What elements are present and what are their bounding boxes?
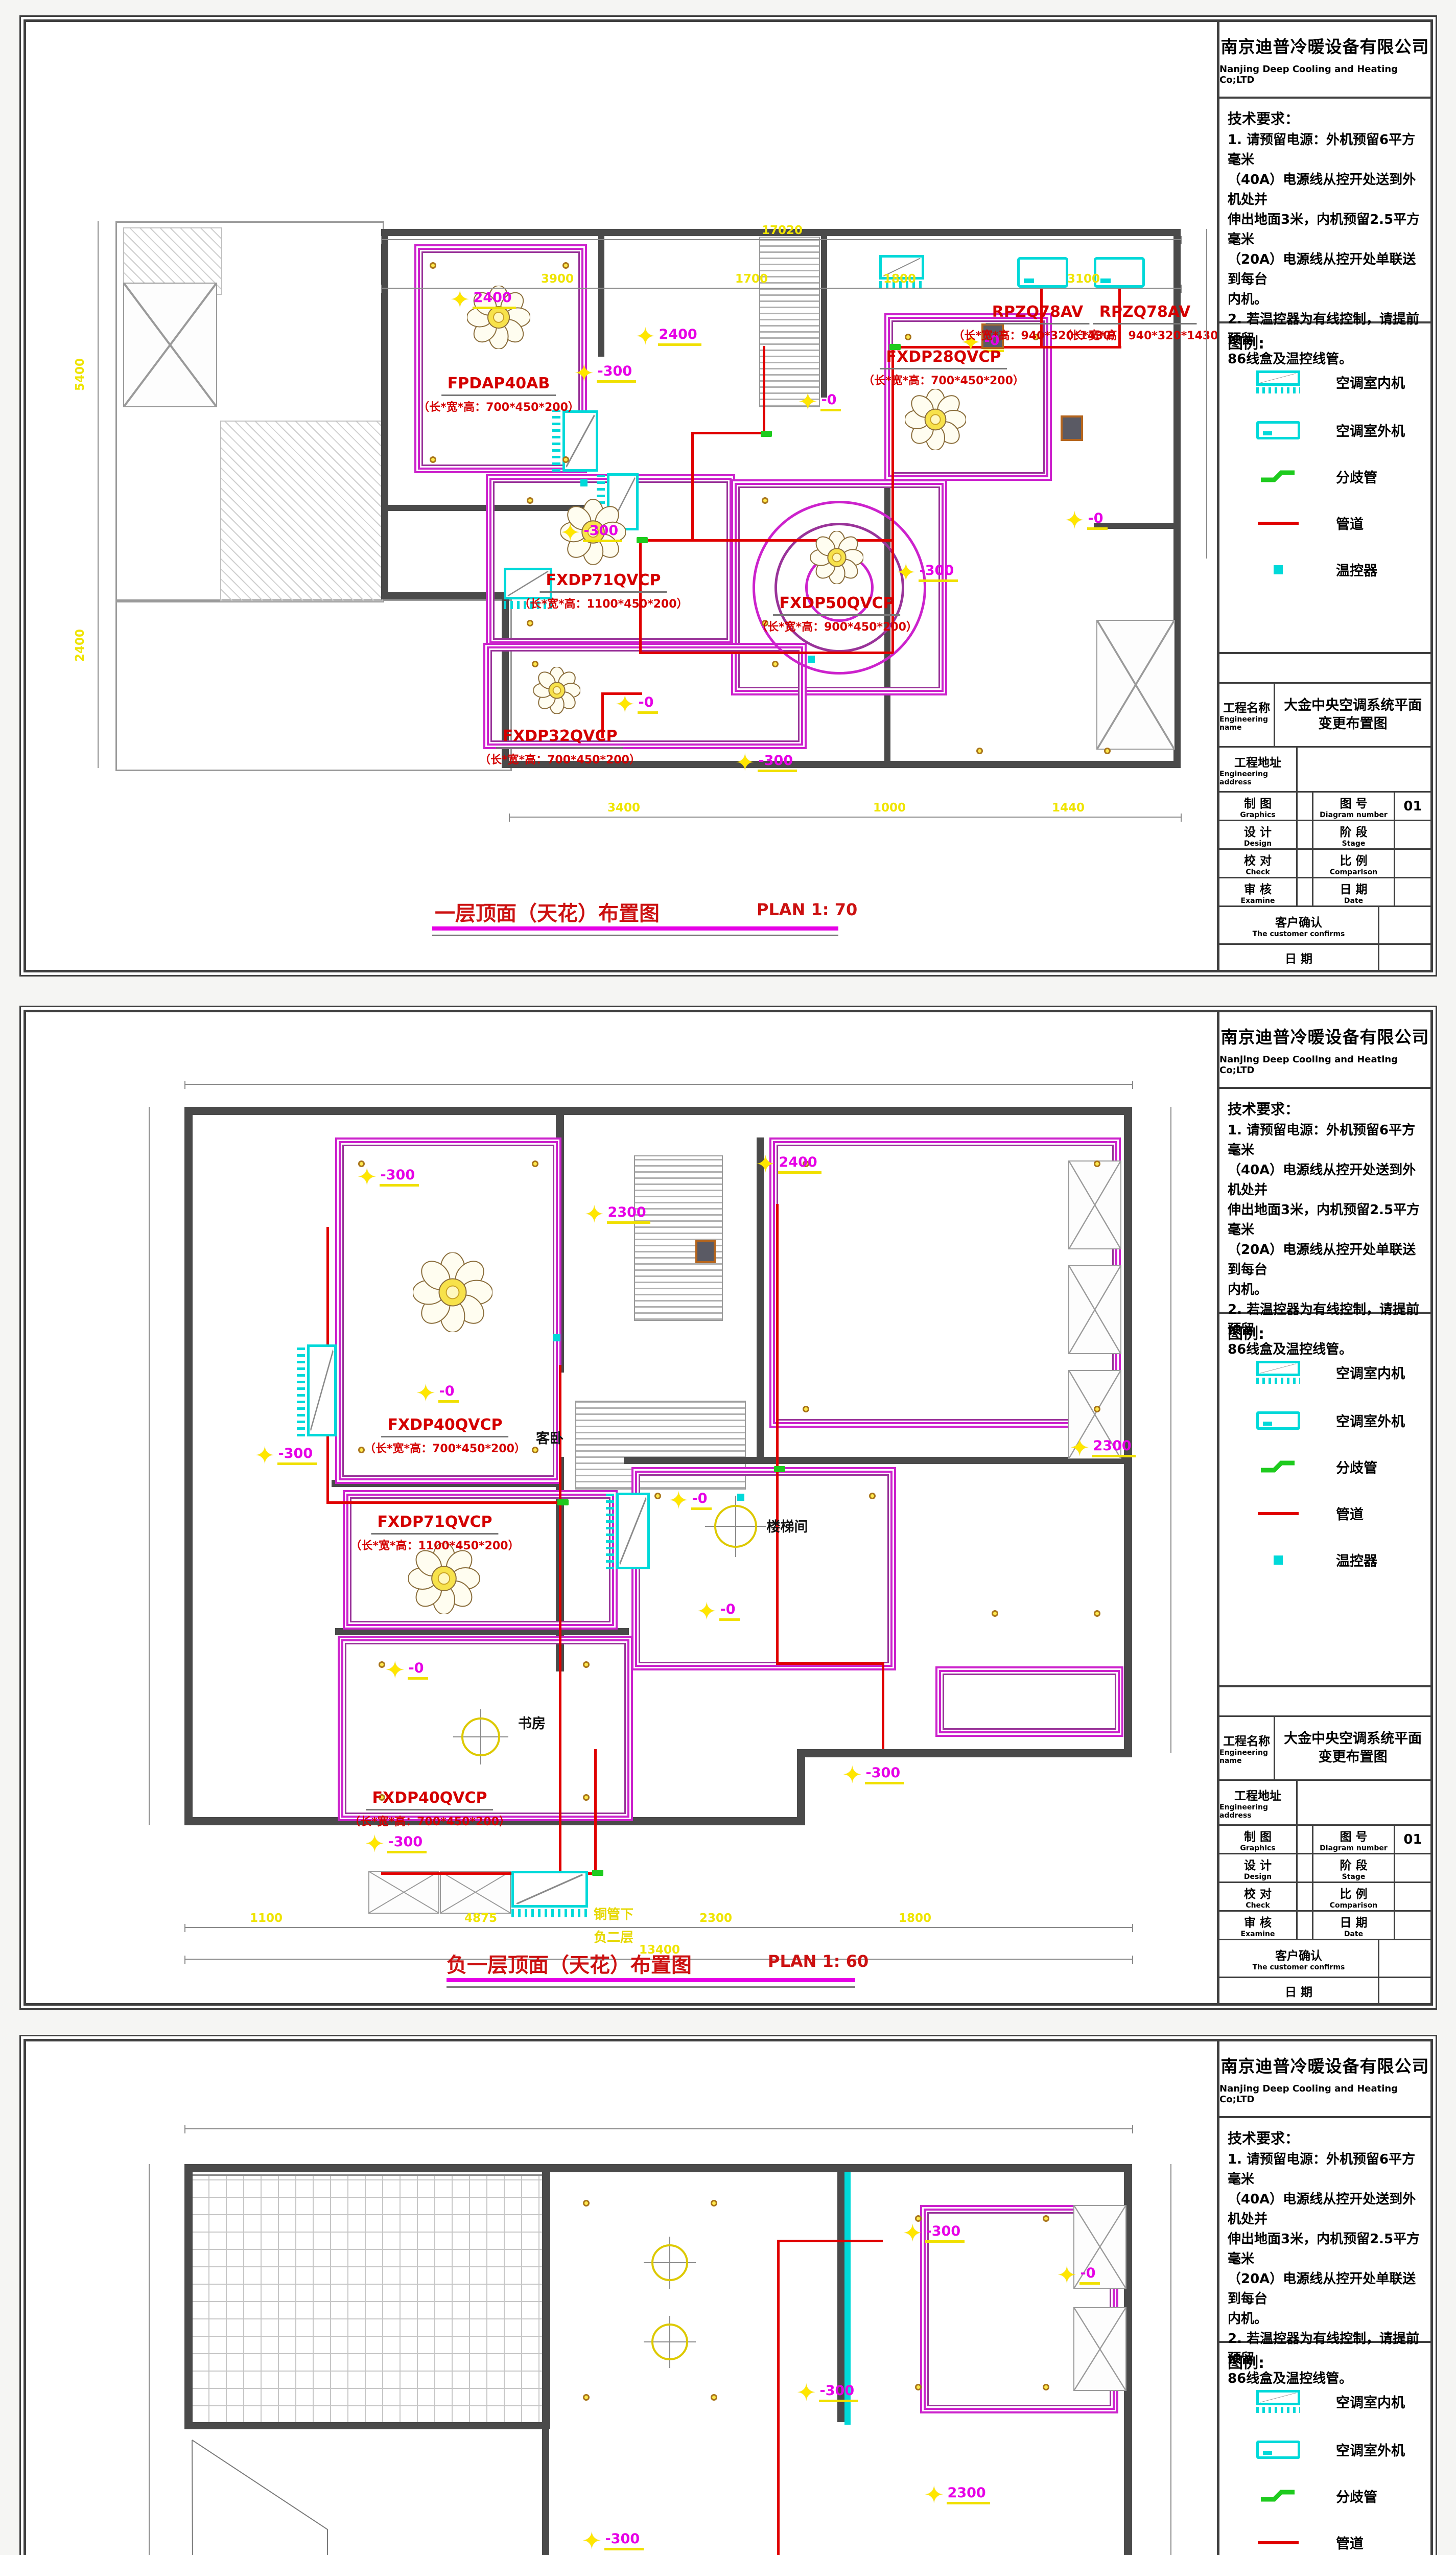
legend-symbol xyxy=(1240,468,1317,486)
dimension-line xyxy=(381,239,1181,240)
field-label: 工程地址Engineering address xyxy=(1219,748,1296,791)
field-label-cn: 日 期 xyxy=(1340,1913,1367,1930)
table-row: 日 期 xyxy=(1219,943,1430,970)
wall-segment xyxy=(757,1137,764,1457)
company-header: 南京迪普冷暖设备有限公司Nanjing Deep Cooling and Hea… xyxy=(1219,2041,1430,2118)
downlight-icon xyxy=(1094,1406,1100,1412)
field-label-cn: 阶 段 xyxy=(1340,1855,1367,1873)
technical-requirements: 技术要求：1. 请预留电源：外机预留6平方毫米 （40A）电源线从控开处送到外机… xyxy=(1219,99,1430,323)
dimension-value: 2300 xyxy=(699,1912,732,1925)
unit-label: FXDP50QVCP（长*宽*高：900*450*200） xyxy=(756,594,918,634)
thermostat-symbol xyxy=(553,1334,560,1341)
legend-symbol xyxy=(1240,522,1317,525)
indoor-unit-icon xyxy=(1256,370,1300,386)
star-icon: ✦ xyxy=(669,1489,689,1512)
plan-title: 一层顶面（天花）布置图 xyxy=(435,897,660,926)
indoor-unit-symbol xyxy=(562,410,598,472)
downlight-icon xyxy=(583,2394,590,2401)
refrigerant-pipe xyxy=(776,1204,779,1664)
elevation-value: -0 xyxy=(438,1383,459,1403)
crossed-panel xyxy=(368,1871,439,1914)
dimension-line-vertical xyxy=(98,221,99,768)
field-label: 工程名称Engineering name xyxy=(1219,1717,1274,1779)
outdoor-unit-icon xyxy=(1256,1411,1300,1430)
dimension-tick xyxy=(1181,236,1182,244)
legend-item: 分歧管 xyxy=(1240,2486,1422,2506)
legend-label: 管道 xyxy=(1336,513,1364,533)
wall-segment xyxy=(797,1749,805,1825)
company-name-en: Nanjing Deep Cooling and Heating Co;LTD xyxy=(1219,1054,1430,1076)
legend-item: 温控器 xyxy=(1240,1550,1422,1570)
elevation-mark: ✦-0 xyxy=(798,390,841,413)
field-empty xyxy=(1296,793,1312,820)
star-icon: ✦ xyxy=(924,2483,944,2506)
downlight-icon xyxy=(711,2394,717,2401)
field-label-en: Engineering name xyxy=(1219,715,1274,732)
elevation-value: -300 xyxy=(604,2531,644,2550)
downlight-icon xyxy=(358,1447,365,1453)
field-empty xyxy=(1378,945,1430,970)
legend-item: 空调室内机 xyxy=(1240,2390,1422,2413)
table-row: 工程地址Engineering address xyxy=(1219,1779,1430,1824)
star-icon: ✦ xyxy=(1057,2263,1077,2287)
dimension-value: 2400 xyxy=(74,629,87,662)
room-name: 客卧 xyxy=(536,1427,563,1447)
elevation-value: -300 xyxy=(583,523,623,542)
thermostat-symbol xyxy=(580,479,588,486)
wall-segment xyxy=(821,229,827,398)
airflow-icon xyxy=(552,410,560,472)
unit-dimensions: （长*宽*高：1100*450*200） xyxy=(350,1537,519,1553)
legend: 图例:空调室内机空调室外机分歧管管道温控器 xyxy=(1219,1314,1430,1687)
field-label: 日 期Date xyxy=(1312,878,1394,905)
dimension-tick xyxy=(1181,285,1182,293)
table-row: 设 计Design阶 段Stage xyxy=(1219,1853,1430,1882)
unit-model: FXDP40QVCP xyxy=(366,1789,493,1810)
field-label: 校 对Check xyxy=(1219,850,1296,877)
legend-label: 空调室内机 xyxy=(1336,2391,1405,2411)
dimension-value: 4875 xyxy=(464,1912,497,1925)
outdoor-unit-foot xyxy=(1100,278,1111,283)
legend-label: 空调室外机 xyxy=(1336,420,1405,440)
ceiling-border-outline xyxy=(935,1666,1123,1737)
branch-pipe-fitting xyxy=(557,1499,569,1505)
field-label: 日 期 xyxy=(1219,1978,1378,2003)
company-name-en: Nanjing Deep Cooling and Heating Co;LTD xyxy=(1219,64,1430,85)
dimension-value: 3100 xyxy=(1067,272,1100,286)
downlight-icon xyxy=(430,262,436,269)
indoor-unit-symbol xyxy=(511,1871,588,1908)
field-empty xyxy=(1378,1940,1430,1977)
field-label: 工程名称Engineering name xyxy=(1219,684,1274,746)
dimension-value: 1100 xyxy=(250,1912,283,1925)
field-empty xyxy=(1296,1854,1312,1882)
star-icon: ✦ xyxy=(756,1152,776,1176)
field-label-en: Examine xyxy=(1241,897,1275,905)
table-row: 审 核Examine日 期Date xyxy=(1219,877,1430,905)
field-label: 设 计Design xyxy=(1219,821,1296,848)
wall-segment xyxy=(184,2164,193,2429)
downlight-icon xyxy=(562,262,569,269)
unit-dimensions: （长*宽*高：1100*450*200） xyxy=(519,595,688,611)
company-name-cn: 南京迪普冷暖设备有限公司 xyxy=(1221,33,1429,58)
dimension-value: 1000 xyxy=(873,801,906,815)
branch-pipe-icon xyxy=(1260,468,1297,486)
ceiling-medallion xyxy=(810,531,863,586)
crossed-panel xyxy=(1073,2307,1126,2391)
airflow-icon xyxy=(511,1909,588,1917)
elevation-value: 2300 xyxy=(1092,1438,1136,1457)
elevation-mark: ✦-300 xyxy=(365,1832,427,1855)
elevation-mark: ✦-0 xyxy=(1057,2263,1100,2287)
star-icon: ✦ xyxy=(796,2381,816,2404)
crossed-panel xyxy=(440,1871,511,1914)
wall-segment xyxy=(624,1457,1132,1464)
field-label: 制 图Graphics xyxy=(1219,1826,1296,1853)
unit-model: FXDP40QVCP xyxy=(381,1416,508,1437)
legend-item: 管道 xyxy=(1240,1503,1422,1523)
elevation-value: -300 xyxy=(597,363,637,383)
star-icon: ✦ xyxy=(416,1381,436,1405)
field-value: 01 xyxy=(1394,793,1430,820)
field-label-en: Graphics xyxy=(1240,1844,1275,1852)
legend-label: 温控器 xyxy=(1336,560,1377,579)
elevation-mark: ✦-300 xyxy=(842,1763,904,1786)
refrigerant-pipe xyxy=(691,432,694,540)
field-label-cn: 制 图 xyxy=(1244,794,1272,811)
downlight-icon xyxy=(1043,2215,1049,2222)
legend-symbol xyxy=(1240,1512,1317,1515)
legend-label: 空调室内机 xyxy=(1336,1362,1405,1382)
elevation-value: -0 xyxy=(1079,2265,1100,2285)
field-label-en: Comparison xyxy=(1330,868,1378,876)
downlight-icon xyxy=(869,1493,876,1499)
elevation-mark: ✦-300 xyxy=(582,2529,644,2552)
star-icon: ✦ xyxy=(357,1165,377,1189)
elevation-value: -300 xyxy=(865,1765,905,1784)
drawing-sheet-1: ✦-300✦2400✦2400✦-0✦-300✦-300✦-0✦-0✦-300✦… xyxy=(19,15,1437,977)
legend-symbol xyxy=(1240,2487,1317,2505)
legend-item: 分歧管 xyxy=(1240,467,1422,486)
field-label: 图 号Diagram number xyxy=(1312,1826,1394,1853)
elevation-value: 2400 xyxy=(778,1154,821,1174)
field-value xyxy=(1296,1781,1430,1824)
wall-segment xyxy=(598,229,604,357)
legend-label: 分歧管 xyxy=(1336,1457,1377,1477)
field-label-cn: 审 核 xyxy=(1244,1913,1272,1930)
electric-box xyxy=(695,1240,716,1263)
star-icon: ✦ xyxy=(560,521,580,544)
legend-label: 管道 xyxy=(1336,1503,1364,1523)
unit-label: FXDP28QVCP（长*宽*高：700*450*200） xyxy=(863,348,1024,388)
ceiling-center-mark xyxy=(453,1709,508,1767)
branch-pipe-fitting xyxy=(761,431,772,437)
crossed-panel xyxy=(1068,1160,1121,1249)
elevation-value: -300 xyxy=(925,2223,965,2243)
unit-label: FXDP40QVCP（长*宽*高：700*450*200） xyxy=(364,1416,526,1456)
dimension-tick xyxy=(1132,2125,1133,2133)
field-label-cn: 比 例 xyxy=(1340,1884,1367,1901)
balcony-outline xyxy=(115,599,512,771)
star-icon: ✦ xyxy=(842,1763,862,1786)
field-label-en: Examine xyxy=(1241,1930,1275,1938)
dimension-tick xyxy=(381,236,382,244)
company-header: 南京迪普冷暖设备有限公司Nanjing Deep Cooling and Hea… xyxy=(1219,1012,1430,1089)
dimension-line xyxy=(184,1084,1132,1085)
field-empty xyxy=(1219,1687,1430,1715)
dimension-tick xyxy=(509,814,510,822)
dimension-line xyxy=(184,1927,1132,1928)
field-label-cn: 工程地址 xyxy=(1234,1786,1281,1803)
field-label-cn: 工程地址 xyxy=(1234,753,1281,770)
legend-label: 分歧管 xyxy=(1336,2486,1377,2506)
elevation-value: -300 xyxy=(387,1834,427,1853)
legend-symbol xyxy=(1240,1361,1317,1384)
unit-label: FXDP40QVCP（长*宽*高：700*450*200） xyxy=(349,1789,510,1829)
refrigerant-pipe xyxy=(777,2240,883,2242)
field-label: 制 图Graphics xyxy=(1219,793,1296,820)
star-icon: ✦ xyxy=(1065,508,1085,532)
plan-title: 负一层顶面（天花）布置图 xyxy=(447,1948,692,1978)
legend-symbol xyxy=(1240,2541,1317,2544)
field-label-en: The customer confirms xyxy=(1253,930,1345,938)
field-label: 审 核Examine xyxy=(1219,1912,1296,1939)
star-icon: ✦ xyxy=(1070,1436,1090,1459)
field-value xyxy=(1296,748,1430,791)
field-label: 校 对Check xyxy=(1219,1883,1296,1910)
field-label: 审 核Examine xyxy=(1219,878,1296,905)
unit-model: FXDP50QVCP xyxy=(773,594,900,616)
outdoor-unit-icon xyxy=(1256,2441,1300,2459)
refrigerant-pipe xyxy=(763,346,765,433)
field-label-cn: 制 图 xyxy=(1244,1827,1272,1844)
elevation-value: -300 xyxy=(919,563,958,582)
crossed-panel xyxy=(1068,1265,1121,1354)
legend-item: 空调室外机 xyxy=(1240,420,1422,440)
title-underline-magenta xyxy=(447,1978,855,1982)
dimension-tick xyxy=(1132,1924,1133,1932)
elevation-value: 2300 xyxy=(607,1204,650,1224)
field-label: 设 计Design xyxy=(1219,1854,1296,1882)
tech-requirements-title: 技术要求： xyxy=(1228,1098,1422,1119)
field-value-text: 大金中央空调系统平面变更布置图 xyxy=(1275,1730,1430,1767)
dimension-tick xyxy=(184,1081,185,1089)
legend-item: 空调室内机 xyxy=(1240,1361,1422,1384)
crossed-panel xyxy=(123,283,217,407)
downlight-icon xyxy=(992,1610,998,1617)
field-label-cn: 日 期 xyxy=(1340,879,1367,897)
field-empty xyxy=(1394,1854,1430,1882)
field-label-en: Stage xyxy=(1342,1873,1366,1881)
field-label: 客户确认The customer confirms xyxy=(1219,907,1378,943)
legend-label: 空调室外机 xyxy=(1336,2440,1405,2459)
table-row: 客户确认The customer confirms xyxy=(1219,1939,1430,1977)
field-label: 阶 段Stage xyxy=(1312,1854,1394,1882)
electric-box xyxy=(1061,415,1083,441)
dimension-line-vertical xyxy=(149,2164,150,2555)
legend-label: 空调室外机 xyxy=(1336,1410,1405,1430)
field-empty xyxy=(1394,878,1430,905)
star-icon: ✦ xyxy=(255,1444,275,1467)
indoor-unit-symbol xyxy=(307,1344,337,1436)
downlight-icon xyxy=(583,1661,590,1668)
field-empty xyxy=(1378,907,1430,943)
wall-segment xyxy=(797,1749,1132,1757)
elevation-mark: ✦-300 xyxy=(896,561,958,584)
ceiling-center-mark xyxy=(644,2237,696,2291)
elevation-mark: ✦2300 xyxy=(584,1202,650,1226)
field-empty xyxy=(1394,1883,1430,1910)
downlight-icon xyxy=(527,620,533,626)
field-empty xyxy=(1296,850,1312,877)
field-label: 比 例Comparison xyxy=(1312,1883,1394,1910)
field-empty xyxy=(1394,1912,1430,1939)
elevation-value: -0 xyxy=(1087,510,1108,530)
downlight-icon xyxy=(1104,748,1111,754)
field-empty xyxy=(1394,850,1430,877)
field-empty xyxy=(1296,1826,1312,1853)
field-label-cn: 客户确认 xyxy=(1275,1946,1322,1963)
airflow-icon xyxy=(1256,387,1300,393)
field-label-cn: 工程名称 xyxy=(1223,1731,1270,1749)
star-icon: ✦ xyxy=(735,751,755,774)
airflow-icon xyxy=(1256,1378,1300,1384)
technical-requirements: 技术要求：1. 请预留电源：外机预留6平方毫米 （40A）电源线从控开处送到外机… xyxy=(1219,1089,1430,1314)
unit-dimensions: （长*宽*高：700*450*200） xyxy=(863,371,1024,388)
thermostat-symbol xyxy=(808,656,815,663)
unit-label: RPZQ78AV（长*宽*高：940*320*1430） xyxy=(1060,303,1229,343)
elevation-mark: ✦-0 xyxy=(697,1599,740,1623)
field-label-cn: 校 对 xyxy=(1244,1884,1272,1901)
unit-dimensions: （长*宽*高：700*450*200） xyxy=(364,1439,526,1456)
title-block: 南京迪普冷暖设备有限公司Nanjing Deep Cooling and Hea… xyxy=(1217,1012,1430,2003)
airflow-icon xyxy=(606,1493,614,1569)
elevation-mark: ✦-300 xyxy=(735,751,797,774)
legend-item: 管道 xyxy=(1240,513,1422,533)
indoor-unit-icon xyxy=(1256,2390,1300,2405)
star-icon: ✦ xyxy=(584,1202,604,1226)
downlight-icon xyxy=(532,1447,538,1453)
outdoor-unit-symbol xyxy=(1094,257,1145,288)
field-label-cn: 日 期 xyxy=(1285,949,1312,966)
unit-dimensions: （长*宽*高：940*320*1430） xyxy=(1060,327,1229,343)
hatched-area xyxy=(220,421,383,601)
downlight-icon xyxy=(905,334,911,340)
elevation-mark: ✦-0 xyxy=(669,1489,712,1512)
title-underline-gray xyxy=(447,1986,855,1988)
refrigerant-pipe xyxy=(639,652,894,654)
thermostat-icon xyxy=(1274,1555,1283,1565)
legend-item: 管道 xyxy=(1240,2533,1422,2552)
unit-label: FPDAP40AB（长*宽*高：700*450*200） xyxy=(418,375,579,414)
pipe-icon xyxy=(1258,522,1299,525)
star-icon: ✦ xyxy=(697,1599,717,1623)
field-label-cn: 阶 段 xyxy=(1340,822,1367,840)
unit-model: FXDP71QVCP xyxy=(371,1513,498,1535)
legend-symbol xyxy=(1240,1555,1317,1565)
dimension-tick xyxy=(184,1956,185,1964)
field-empty xyxy=(1296,1912,1312,1939)
unit-label: FXDP71QVCP（长*宽*高：1100*450*200） xyxy=(350,1513,519,1553)
downlight-icon xyxy=(1094,1610,1100,1617)
field-label-en: Check xyxy=(1246,868,1270,876)
dimension-line-vertical xyxy=(149,1107,150,1825)
dimension-tick xyxy=(1132,1081,1133,1089)
table-row: 日 期 xyxy=(1219,1977,1430,2003)
unit-label: FXDP32QVCP（长*宽*高：700*450*200） xyxy=(479,727,641,767)
field-label-en: Design xyxy=(1244,840,1272,848)
table-row: 工程名称Engineering name大金中央空调系统平面变更布置图 xyxy=(1219,1715,1430,1779)
field-label: 阶 段Stage xyxy=(1312,821,1394,848)
field-label-en: Graphics xyxy=(1240,811,1275,819)
project-info-table: 工程名称Engineering name大金中央空调系统平面变更布置图工程地址E… xyxy=(1219,1687,1430,2003)
field-label-en: Date xyxy=(1344,1930,1363,1938)
tech-requirements-title: 技术要求： xyxy=(1228,2127,1422,2148)
drawing-sheet-3: ✦-300✦2300✦-0✦-300✦-300✦-0✦-300✦-0FXDP71… xyxy=(19,2035,1437,2555)
technical-requirements: 技术要求：1. 请预留电源：外机预留6平方毫米 （40A）电源线从控开处送到外机… xyxy=(1219,2118,1430,2343)
legend: 图例:空调室内机空调室外机分歧管管道温控器 xyxy=(1219,2343,1430,2555)
unit-model: FXDP71QVCP xyxy=(539,571,667,593)
unit-dimensions: （长*宽*高：700*450*200） xyxy=(418,398,579,414)
field-value: 大金中央空调系统平面变更布置图 xyxy=(1274,1717,1430,1779)
field-value-text: 01 xyxy=(1403,799,1422,814)
legend-item: 空调室外机 xyxy=(1240,2440,1422,2459)
elevation-value: -0 xyxy=(638,694,658,714)
downlight-icon xyxy=(527,497,533,504)
dimension-value: 5400 xyxy=(74,358,87,391)
airflow-icon xyxy=(1256,2407,1300,2413)
dimension-line xyxy=(184,2128,1132,2129)
field-label-en: Diagram number xyxy=(1320,1844,1388,1852)
unit-model: FXDP28QVCP xyxy=(880,348,1007,369)
dimension-tick xyxy=(184,2125,185,2133)
refrigerant-pipe xyxy=(882,1662,884,1749)
refrigerant-pipe xyxy=(691,432,765,434)
field-label-cn: 审 核 xyxy=(1244,879,1272,897)
elevation-mark: ✦-300 xyxy=(255,1444,317,1467)
table-row: 设 计Design阶 段Stage xyxy=(1219,820,1430,848)
cad-drawing-page: ✦-300✦2400✦2400✦-0✦-300✦-300✦-0✦-0✦-300✦… xyxy=(0,0,1456,2555)
company-name-cn: 南京迪普冷暖设备有限公司 xyxy=(1221,2053,1429,2077)
unit-label: FXDP71QVCP（长*宽*高：1100*450*200） xyxy=(519,571,688,611)
field-label-cn: 比 例 xyxy=(1340,851,1367,868)
field-empty xyxy=(1219,654,1430,682)
wall-segment xyxy=(184,1107,193,1825)
field-label-en: Diagram number xyxy=(1320,811,1388,819)
field-label: 日 期 xyxy=(1219,945,1378,970)
legend-symbol xyxy=(1240,1411,1317,1430)
elevation-mark: ✦-0 xyxy=(615,692,658,716)
unit-model: RPZQ78AV xyxy=(1093,303,1197,324)
downlight-icon xyxy=(379,1661,385,1668)
tech-requirements-title: 技术要求： xyxy=(1228,108,1422,128)
thermostat-icon xyxy=(1274,565,1283,574)
field-empty xyxy=(1296,1883,1312,1910)
downlight-icon xyxy=(762,497,768,504)
legend-item: 空调室外机 xyxy=(1240,1410,1422,1430)
legend-symbol xyxy=(1240,2441,1317,2459)
dimension-line xyxy=(509,817,1181,818)
field-label: 日 期Date xyxy=(1312,1912,1394,1939)
field-label-cn: 日 期 xyxy=(1285,1982,1312,2000)
elevation-value: -0 xyxy=(820,392,841,411)
downlight-icon xyxy=(976,748,983,754)
room-name: 楼梯间 xyxy=(767,1516,808,1536)
ceiling-medallion xyxy=(408,1543,480,1616)
dimension-line-vertical xyxy=(1170,2164,1171,2555)
downlight-icon xyxy=(1094,1160,1100,1167)
legend-symbol xyxy=(1240,1458,1317,1476)
